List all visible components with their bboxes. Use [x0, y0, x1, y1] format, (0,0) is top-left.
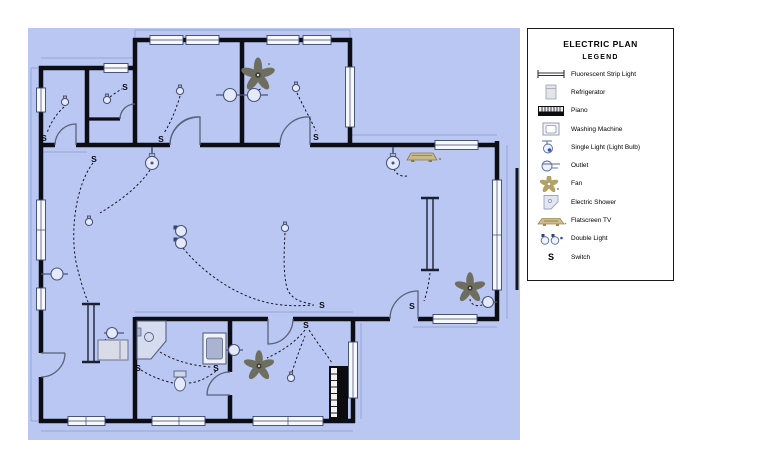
legend-row-electric-shower: Electric Shower: [528, 193, 673, 211]
outlet-icon: [531, 158, 571, 174]
legend-row-outlet: Outlet: [528, 156, 673, 174]
legend-row-flatscreen-tv: Flatscreen TV: [528, 211, 673, 229]
legend-row-washing-machine: Washing Machine: [528, 120, 673, 138]
plan-sheet: [28, 28, 520, 440]
switch-label: S: [41, 133, 47, 143]
legend-label: Fan: [571, 180, 582, 187]
legend-label: Refrigerator: [571, 89, 605, 96]
single-light-icon: [531, 139, 571, 155]
legend-subtitle: LEGEND: [528, 54, 673, 61]
switch-label: S: [303, 320, 309, 330]
legend-row-switch: S Switch: [528, 248, 673, 266]
legend-label: Washing Machine: [571, 126, 622, 133]
washing-machine: [203, 333, 226, 364]
switch-label: S: [319, 300, 325, 310]
switch-label: S: [158, 134, 164, 144]
legend-row-fluorescent-strip-light: Fluorescent Strip Light: [528, 65, 673, 83]
legend-label: Electric Shower: [571, 199, 616, 206]
legend-row-fan: Fan: [528, 175, 673, 193]
refrigerator-icon: [531, 84, 571, 100]
legend-label: Single Light (Light Bulb): [571, 144, 640, 151]
legend-label: Fluorescent Strip Light: [571, 71, 636, 78]
legend-label: Double Light: [571, 235, 608, 242]
electric-shower-icon: [531, 194, 571, 210]
legend-label: Switch: [571, 254, 590, 261]
refrigerator: [98, 340, 128, 360]
switch-label: S: [213, 363, 219, 373]
legend-row-refrigerator: Refrigerator: [528, 83, 673, 101]
fan-icon: [531, 176, 571, 192]
switch-label: S: [122, 82, 128, 92]
washing-machine-icon: [531, 121, 571, 137]
legend-label: Piano: [571, 107, 588, 114]
switch-symbol: S: [531, 252, 571, 262]
legend-row-piano: Piano: [528, 102, 673, 120]
legend-panel: ELECTRIC PLAN LEGEND Fluorescent Strip L…: [527, 28, 674, 281]
legend-label: Flatscreen TV: [571, 217, 611, 224]
switch-label: S: [313, 132, 319, 142]
switch-label: S: [91, 154, 97, 164]
fluorescent-strip-light-icon: [531, 66, 571, 82]
legend-row-single-light: Single Light (Light Bulb): [528, 138, 673, 156]
toilet: [174, 371, 186, 391]
piano-icon: [531, 103, 571, 119]
legend-row-double-light: Double Light: [528, 230, 673, 248]
legend-title: ELECTRIC PLAN: [528, 39, 673, 49]
legend-label: Outlet: [571, 162, 588, 169]
flatscreen-tv-icon: [531, 213, 571, 229]
switch-label: S: [409, 301, 415, 311]
switch-label: S: [135, 363, 141, 373]
piano: [329, 366, 348, 419]
page: SSSSSSSSSS ELECTRIC PLAN LEGEND Fluoresc…: [0, 0, 768, 466]
double-light-icon: [531, 231, 571, 247]
